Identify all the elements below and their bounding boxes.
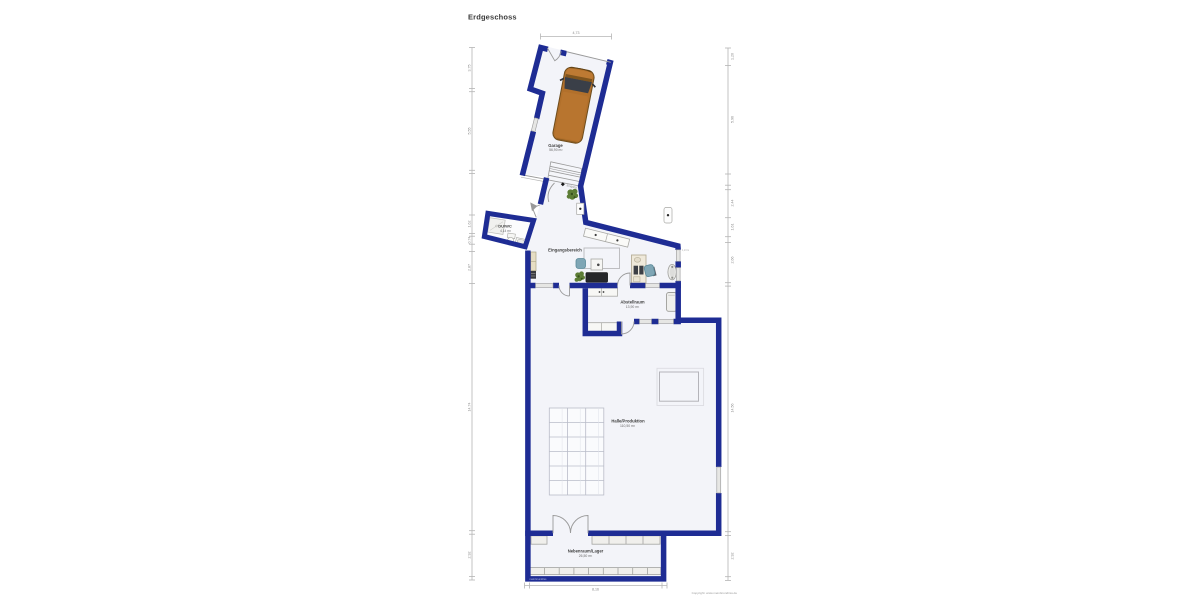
svg-text:4,73: 4,73 [573, 31, 580, 35]
svg-text:2,66: 2,66 [731, 257, 735, 264]
svg-text:1,13 m: 1,13 m [682, 250, 689, 252]
svg-text:2,44: 2,44 [731, 200, 735, 207]
svg-text:4,14 m²: 4,14 m² [500, 229, 511, 233]
svg-text:Erdgeschoss: Erdgeschoss [468, 13, 517, 22]
svg-text:56,90 m²: 56,90 m² [549, 148, 563, 152]
svg-text:2,92: 2,92 [468, 552, 472, 559]
svg-text:5,96: 5,96 [731, 116, 735, 123]
svg-text:Nebenraum/Lager: Nebenraum/Lager [568, 549, 604, 554]
svg-text:2,92: 2,92 [731, 553, 735, 560]
svg-text:1,61: 1,61 [731, 224, 735, 231]
svg-text:110,50 m²: 110,50 m² [620, 424, 636, 428]
svg-text:DU/WC: DU/WC [498, 224, 512, 229]
svg-text:1,20: 1,20 [731, 53, 735, 60]
svg-text:Abstellraum: Abstellraum [620, 300, 644, 305]
svg-text:1,62: 1,62 [468, 221, 472, 228]
svg-text:13,90 m²: 13,90 m² [626, 305, 640, 309]
svg-text:5,55: 5,55 [468, 128, 472, 135]
svg-text:14,74: 14,74 [468, 403, 472, 412]
svg-text:Eingangsbereich: Eingangsbereich [548, 248, 582, 253]
svg-text:8,16: 8,16 [592, 588, 599, 592]
svg-text:3,75: 3,75 [468, 65, 472, 72]
svg-text:2,87: 2,87 [468, 264, 472, 271]
svg-text:Halle/Produktion: Halle/Produktion [611, 419, 645, 424]
svg-text:0,74: 0,74 [468, 237, 472, 244]
svg-text:14,56: 14,56 [731, 404, 735, 413]
svg-text:26,50 m²: 26,50 m² [579, 554, 593, 558]
svg-text:Copyright: www.meinGrundriss.d: Copyright: www.meinGrundriss.de [692, 591, 738, 595]
svg-text:Garage: Garage [548, 143, 563, 148]
svg-text:meinGrundriss: meinGrundriss [530, 577, 548, 581]
